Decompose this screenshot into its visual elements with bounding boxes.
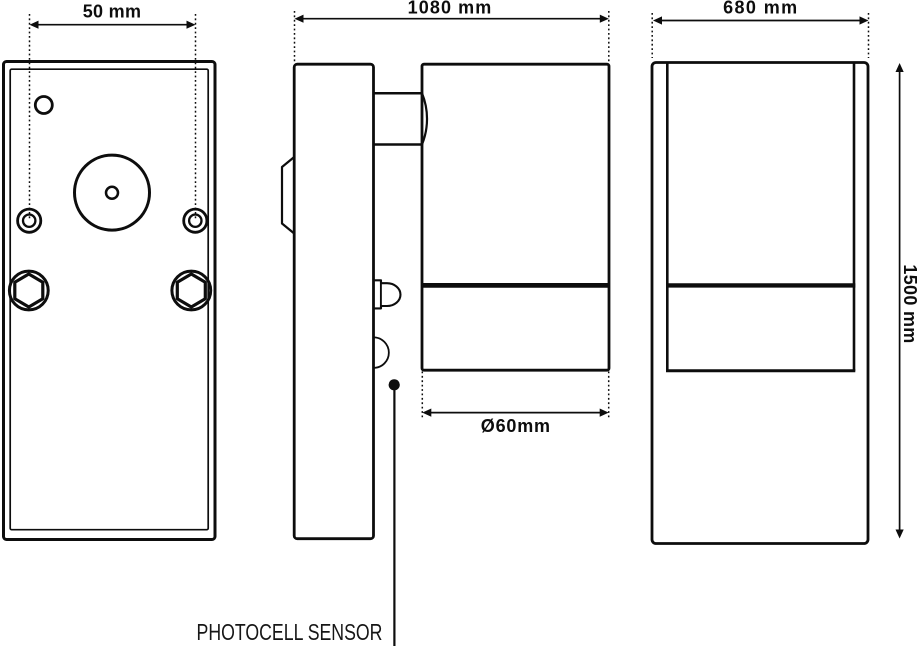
svg-text:1500 mm: 1500 mm: [900, 264, 920, 343]
svg-text:PHOTOCELL SENSOR: PHOTOCELL SENSOR: [197, 620, 383, 646]
svg-text:Ø60mm: Ø60mm: [481, 416, 551, 436]
svg-text:680 mm: 680 mm: [723, 0, 798, 18]
svg-text:1080 mm: 1080 mm: [408, 0, 493, 18]
svg-text:50 mm: 50 mm: [83, 1, 142, 21]
